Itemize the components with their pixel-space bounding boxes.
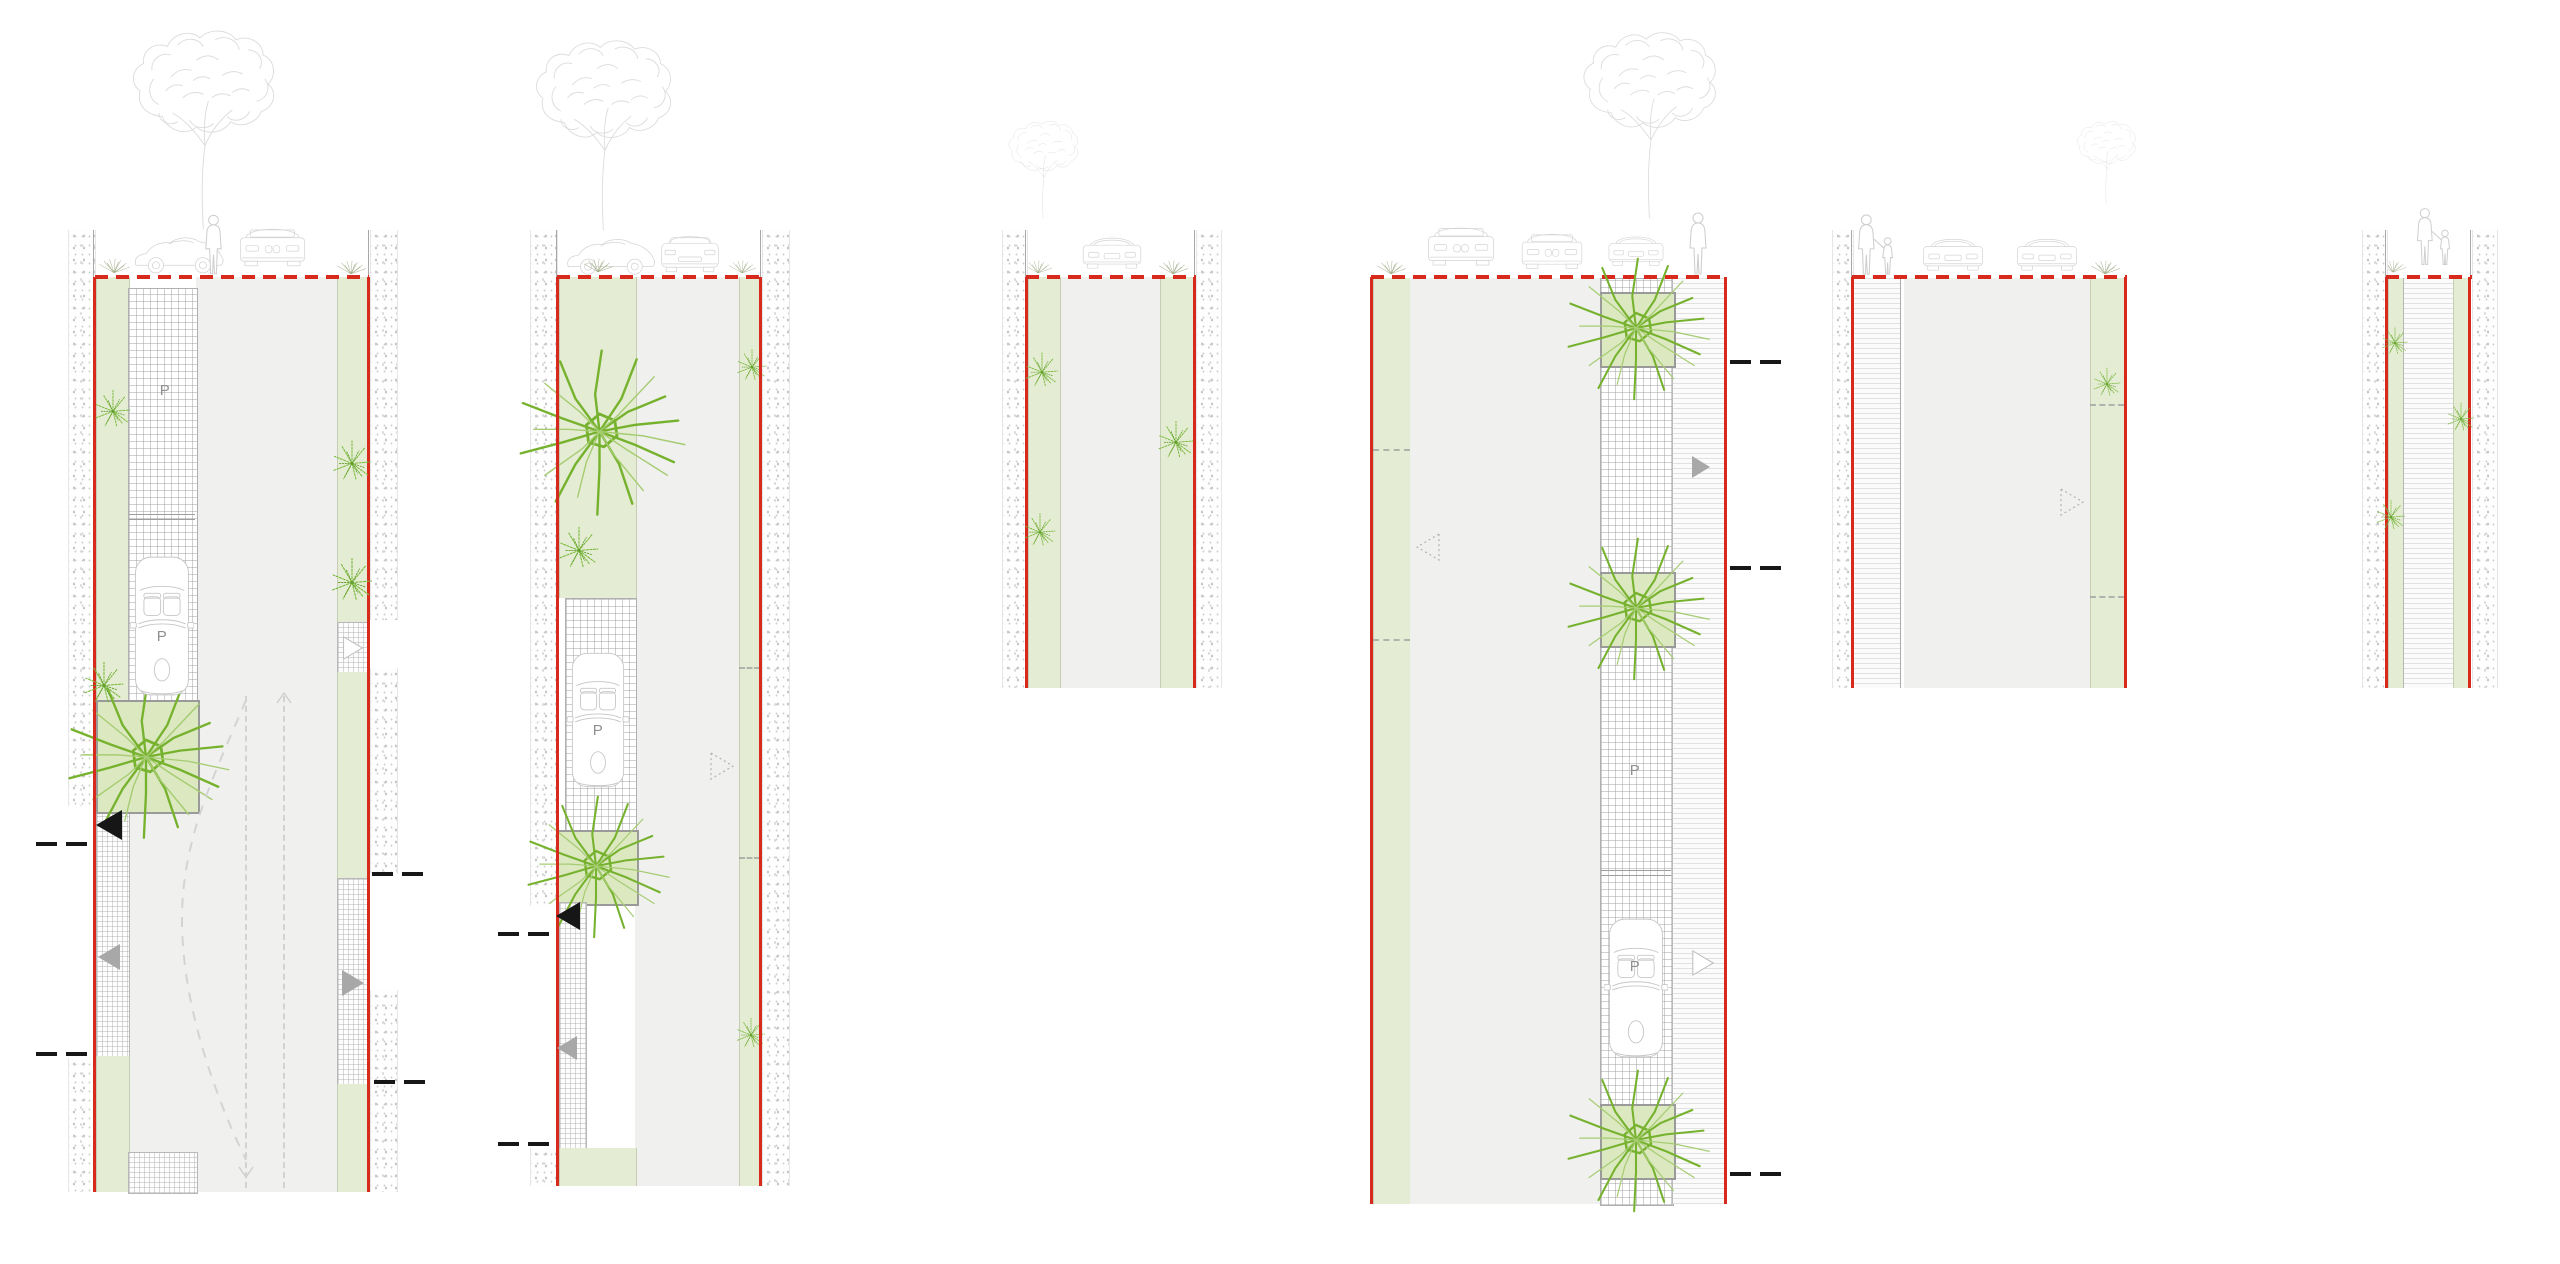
lane-arrow-up-icon [276,692,292,704]
pedestrian-figure-icon [202,214,225,276]
plot-boundary-line [759,277,762,1186]
shrub-icon [730,344,774,388]
plot-boundary-dashed [95,275,369,279]
parking-bay-divider [129,514,195,520]
parked-car-plan-icon [130,552,194,700]
tree-plan-symbol-icon [1561,533,1711,683]
section-cut-marker [498,1142,549,1146]
car-elevation-icon [2012,230,2082,277]
pedestrian-with-child-icon [2412,198,2456,276]
wall-tick [1194,230,1195,277]
parked-car-label: P [583,722,613,739]
green-verge [96,1056,130,1192]
wall-tick [368,230,369,277]
verge-break-line [2090,404,2124,406]
shrub-icon [2370,495,2412,537]
grass-tuft-icon [726,258,758,276]
plot-boundary-dashed [557,275,762,279]
suv-elevation-icon [236,216,309,274]
tree-plan-symbol-icon [521,791,671,941]
direction-triangle-dotted-icon [708,750,736,782]
wall-tick [93,230,94,277]
parked-car-plan-icon [1604,914,1668,1062]
street-tree-elevation-icon [100,26,310,231]
green-verge [337,1084,369,1192]
section-cut-marker [1730,566,1781,570]
wall-tick [1025,230,1026,277]
wall-tick [2470,230,2471,277]
street-tree-elevation-icon [1556,28,1746,220]
lane-dashed-line [283,696,285,1188]
wall-tick [2385,230,2386,277]
shrub-icon [1017,508,1063,554]
section-cut-marker [1730,360,1781,364]
pedestrian-with-child-icon [1852,214,1900,276]
green-verge [1160,277,1195,688]
parked-car-plan-icon [567,648,629,792]
plot-boundary-dashed [2386,275,2472,279]
wall-tick [556,230,557,277]
direction-triangle-dotted-icon [1414,531,1442,563]
shrub-icon [75,655,133,713]
section-cut-marker [374,1080,425,1084]
shrub-icon [87,384,139,436]
direction-triangle-gray-icon [342,970,364,996]
plot-boundary-line [1724,277,1727,1204]
plot-boundary-line [2124,277,2127,688]
tree-plan-symbol-icon [1561,1065,1711,1215]
lane-shift-curve [150,690,270,1176]
section-cut-marker [36,842,87,846]
verge-break-line [1373,449,1410,451]
green-verge [2090,278,2126,688]
building-wall [370,668,398,874]
plot-boundary-line [367,277,370,1192]
section-arrow-black-icon [556,902,580,930]
verge-break-line [739,857,760,859]
verge-break-line [2090,596,2124,598]
parking-bay-label: P [150,382,180,399]
direction-triangle-gray-icon [98,944,120,970]
green-verge [1028,277,1061,688]
section-cut-marker [372,872,423,876]
shrub-icon [322,551,382,611]
green-verge [96,277,130,700]
car-elevation-icon [1918,230,1988,277]
direction-triangle-dotted-icon [2058,486,2086,518]
shrub-icon [1150,415,1202,467]
section-cut-marker [1730,1172,1781,1176]
plot-boundary-line [1025,277,1028,688]
sedan-rear-elevation-icon [656,230,724,275]
building-wall [68,1058,96,1192]
street-tree-elevation-icon [515,36,695,232]
plot-boundary-line [2468,277,2471,688]
direction-triangle-outline-icon [1690,948,1716,978]
paved-strip [96,810,130,1058]
parked-car-label: P [1620,958,1650,975]
building-wall [530,1148,558,1186]
shrub-icon [324,434,380,490]
tree-plan-symbol-icon [1561,253,1711,403]
section-arrow-black-icon [96,810,122,840]
plot-boundary-dashed [1026,275,1196,279]
verge-break-line [1373,639,1410,641]
building-wall [2472,230,2498,688]
suv-elevation-icon [1424,214,1498,274]
plot-boundary-dashed [1852,275,2127,279]
crossing-triangle-outline-icon [341,634,365,662]
green-verge [337,672,369,878]
wall-tick [760,230,761,277]
car-elevation-icon [1078,226,1146,278]
green-verge [1373,278,1412,1204]
direction-triangle-gray-icon [1692,456,1710,478]
street-tree-elevation-icon [2068,92,2146,232]
green-verge [559,1148,637,1186]
plot-boundary-line [1193,277,1196,688]
direction-triangle-gray-icon [557,1036,577,1060]
section-cut-marker [36,1052,87,1056]
plan-drawing-canvas: P P P [0,0,2560,1264]
shrub-icon [1018,347,1066,395]
street-tree-elevation-icon [998,100,1090,238]
tree-plan-symbol-icon [512,344,687,519]
section-cut-marker [498,932,549,936]
carriageway [1059,277,1160,688]
grass-tuft-icon [581,256,615,275]
wall-tick [1851,230,1852,277]
grass-tuft-icon [96,256,132,276]
shrub-icon [2441,398,2481,438]
plot-boundary-line [1370,277,1373,1204]
shrub-icon [2087,363,2127,403]
shrub-icon [2376,323,2414,361]
parked-car-label: P [147,628,177,645]
parking-bay-label: P [1620,762,1650,779]
building-wall [370,990,398,1192]
verge-break-line [739,667,760,669]
parking-bay-divider [1601,870,1671,876]
sidewalk-hatch [1854,278,1900,688]
carriageway [1904,278,2090,688]
plot-boundary-line [1851,277,1854,688]
shrub-icon [730,1013,772,1055]
